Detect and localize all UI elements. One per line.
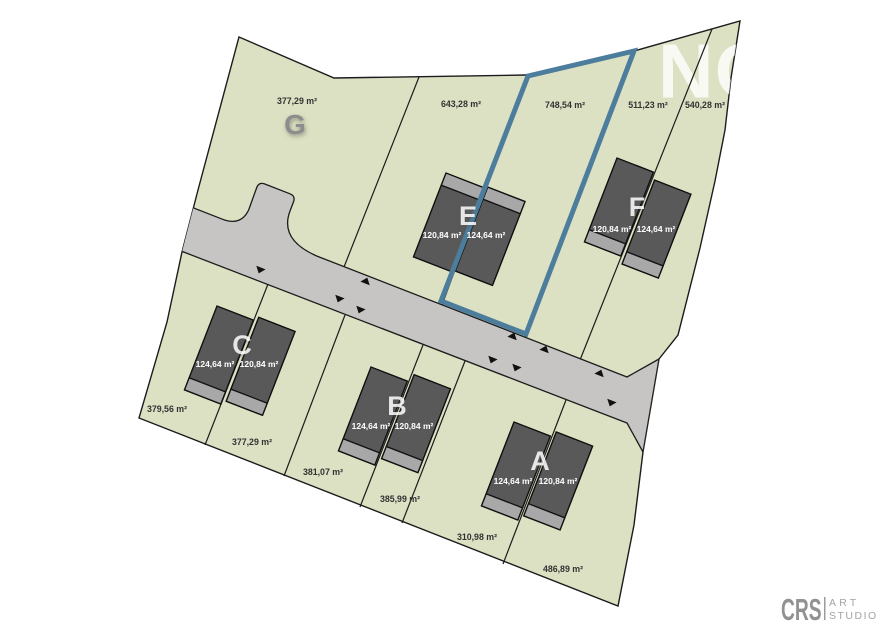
svg-text:540,28 m²: 540,28 m² bbox=[685, 100, 725, 110]
svg-text:124,64 m²: 124,64 m² bbox=[467, 230, 506, 240]
svg-text:STUDIO: STUDIO bbox=[829, 610, 878, 622]
svg-text:310,98 m²: 310,98 m² bbox=[457, 532, 497, 542]
svg-text:124,64 m²: 124,64 m² bbox=[352, 421, 391, 431]
svg-text:124,64 m²: 124,64 m² bbox=[196, 359, 235, 369]
svg-text:F: F bbox=[629, 192, 646, 222]
svg-text:381,07 m²: 381,07 m² bbox=[303, 467, 343, 477]
svg-text:CRS: CRS bbox=[781, 594, 822, 625]
svg-text:385,99 m²: 385,99 m² bbox=[380, 494, 420, 504]
svg-text:C: C bbox=[232, 330, 252, 360]
svg-text:486,89 m²: 486,89 m² bbox=[543, 564, 583, 574]
svg-text:377,29 m²: 377,29 m² bbox=[232, 437, 272, 447]
svg-text:ART: ART bbox=[829, 597, 859, 609]
svg-text:377,29 m²: 377,29 m² bbox=[277, 96, 317, 106]
svg-text:120,84 m²: 120,84 m² bbox=[423, 230, 462, 240]
svg-text:511,23 m²: 511,23 m² bbox=[628, 100, 668, 110]
svg-text:A: A bbox=[530, 446, 550, 476]
svg-text:120,84 m²: 120,84 m² bbox=[593, 224, 632, 234]
svg-text:124,64 m²: 124,64 m² bbox=[494, 476, 533, 486]
svg-text:124,64 m²: 124,64 m² bbox=[637, 224, 676, 234]
svg-text:E: E bbox=[459, 201, 477, 231]
svg-text:643,28 m²: 643,28 m² bbox=[441, 99, 481, 109]
svg-text:G: G bbox=[284, 109, 306, 140]
svg-text:748,54 m²: 748,54 m² bbox=[545, 100, 585, 110]
svg-text:120,84 m²: 120,84 m² bbox=[240, 359, 279, 369]
svg-text:B: B bbox=[387, 391, 407, 421]
svg-text:120,84 m²: 120,84 m² bbox=[395, 421, 434, 431]
svg-text:120,84 m²: 120,84 m² bbox=[539, 476, 578, 486]
svg-text:379,56 m²: 379,56 m² bbox=[147, 404, 187, 414]
